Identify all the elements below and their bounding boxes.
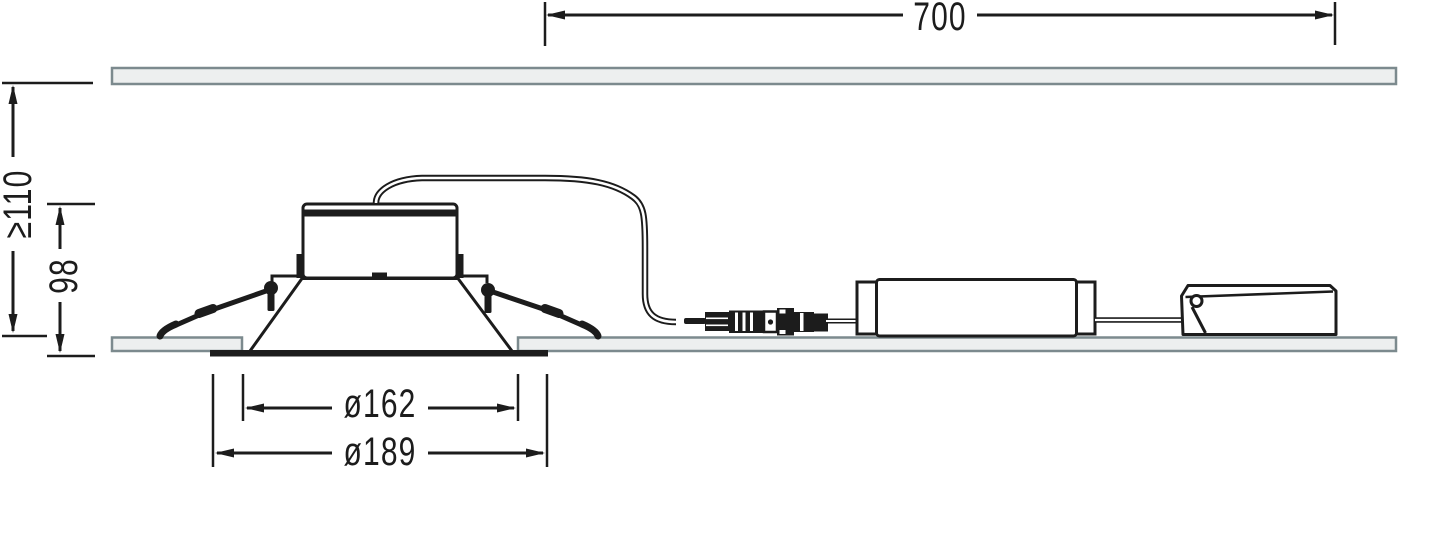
downlight-fixture [160,204,598,357]
arrow-left [245,404,264,413]
arrow-right [1315,11,1334,20]
ceiling-panel-top [112,68,1396,84]
dim-label-housing-height: 98 [44,258,84,294]
arrow-down [56,334,65,353]
reflector-trapezoid [250,279,512,352]
dim-label-min-recess-depth: ≥110 [0,170,38,239]
junction-box [1182,286,1337,335]
connector-stub [372,273,387,280]
dim-label-overall-diameter: ø189 [344,432,417,472]
housing-band [302,210,459,217]
arrow-right [526,449,545,458]
plug-pin [684,318,706,324]
drawing-linework [0,0,1440,541]
pivot-pin-left [268,293,275,311]
ceiling-panel-bottom-left [112,338,242,352]
arrow-right [497,404,516,413]
driver-body [877,280,1077,337]
arrow-up [56,206,65,225]
dim-label-cutout-diameter: ø162 [344,384,417,424]
screw-hole [1191,296,1202,307]
installation-drawing: 700 ≥110 98 ø162 ø189 [0,0,1440,541]
bracket-left [297,254,304,278]
latch-dot [768,319,773,324]
ceiling-panel-bottom-right [518,338,1396,352]
arrow-left [215,449,234,458]
trim-flange [210,350,548,357]
dim-label-cable-run: 700 [913,0,966,37]
arrow-up [9,85,18,104]
bracket-right [457,254,464,278]
driver-end-cap-right [1076,282,1095,334]
driver-end-cap-left [857,282,878,334]
spring-clip-left [160,291,266,336]
cable-connector [684,308,858,336]
spring-clip-right [493,292,598,336]
led-driver [857,280,1182,337]
pivot-pin-right [485,295,492,313]
arrow-down [9,314,18,333]
arrow-left [546,11,565,20]
